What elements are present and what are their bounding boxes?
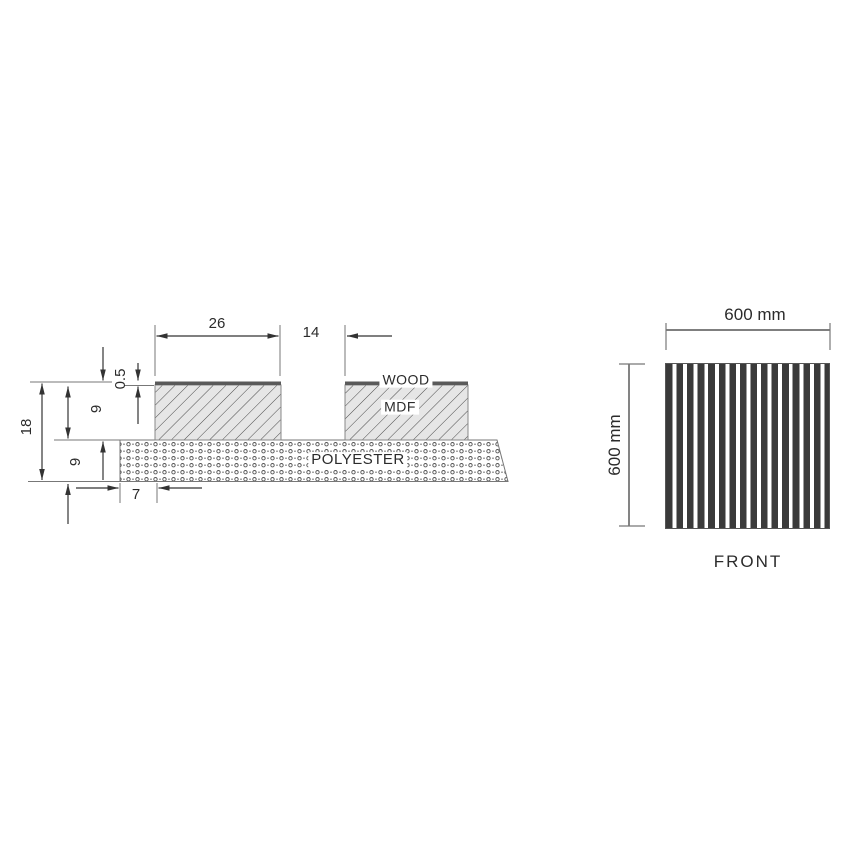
- dim-veneer-thickness-label: 0.5: [113, 369, 129, 390]
- dim-edge-offset-label: 7: [132, 487, 140, 503]
- dim-slat-width-label: 26: [209, 316, 226, 332]
- polyester-label: POLYESTER: [308, 452, 407, 468]
- dim-polyester-thickness-label: 9: [68, 458, 84, 466]
- mdf-label: MDF: [381, 400, 419, 415]
- front-height-label: 600 mm: [606, 412, 624, 477]
- dim-total-thickness-label: 18: [19, 419, 35, 436]
- dim-gap-label: 14: [303, 325, 320, 341]
- slat-1: [155, 382, 281, 441]
- front-width-label: 600 mm: [722, 306, 787, 324]
- dim-mdf-thickness-label: 9: [89, 405, 105, 413]
- front-view-slat-panel: [665, 363, 830, 529]
- technical-drawing: 26 14 0.5 18 9 9 7 WOOD MDF POLYESTER 60…: [0, 0, 868, 868]
- front-caption: FRONT: [712, 553, 785, 571]
- wood-label: WOOD: [379, 373, 432, 388]
